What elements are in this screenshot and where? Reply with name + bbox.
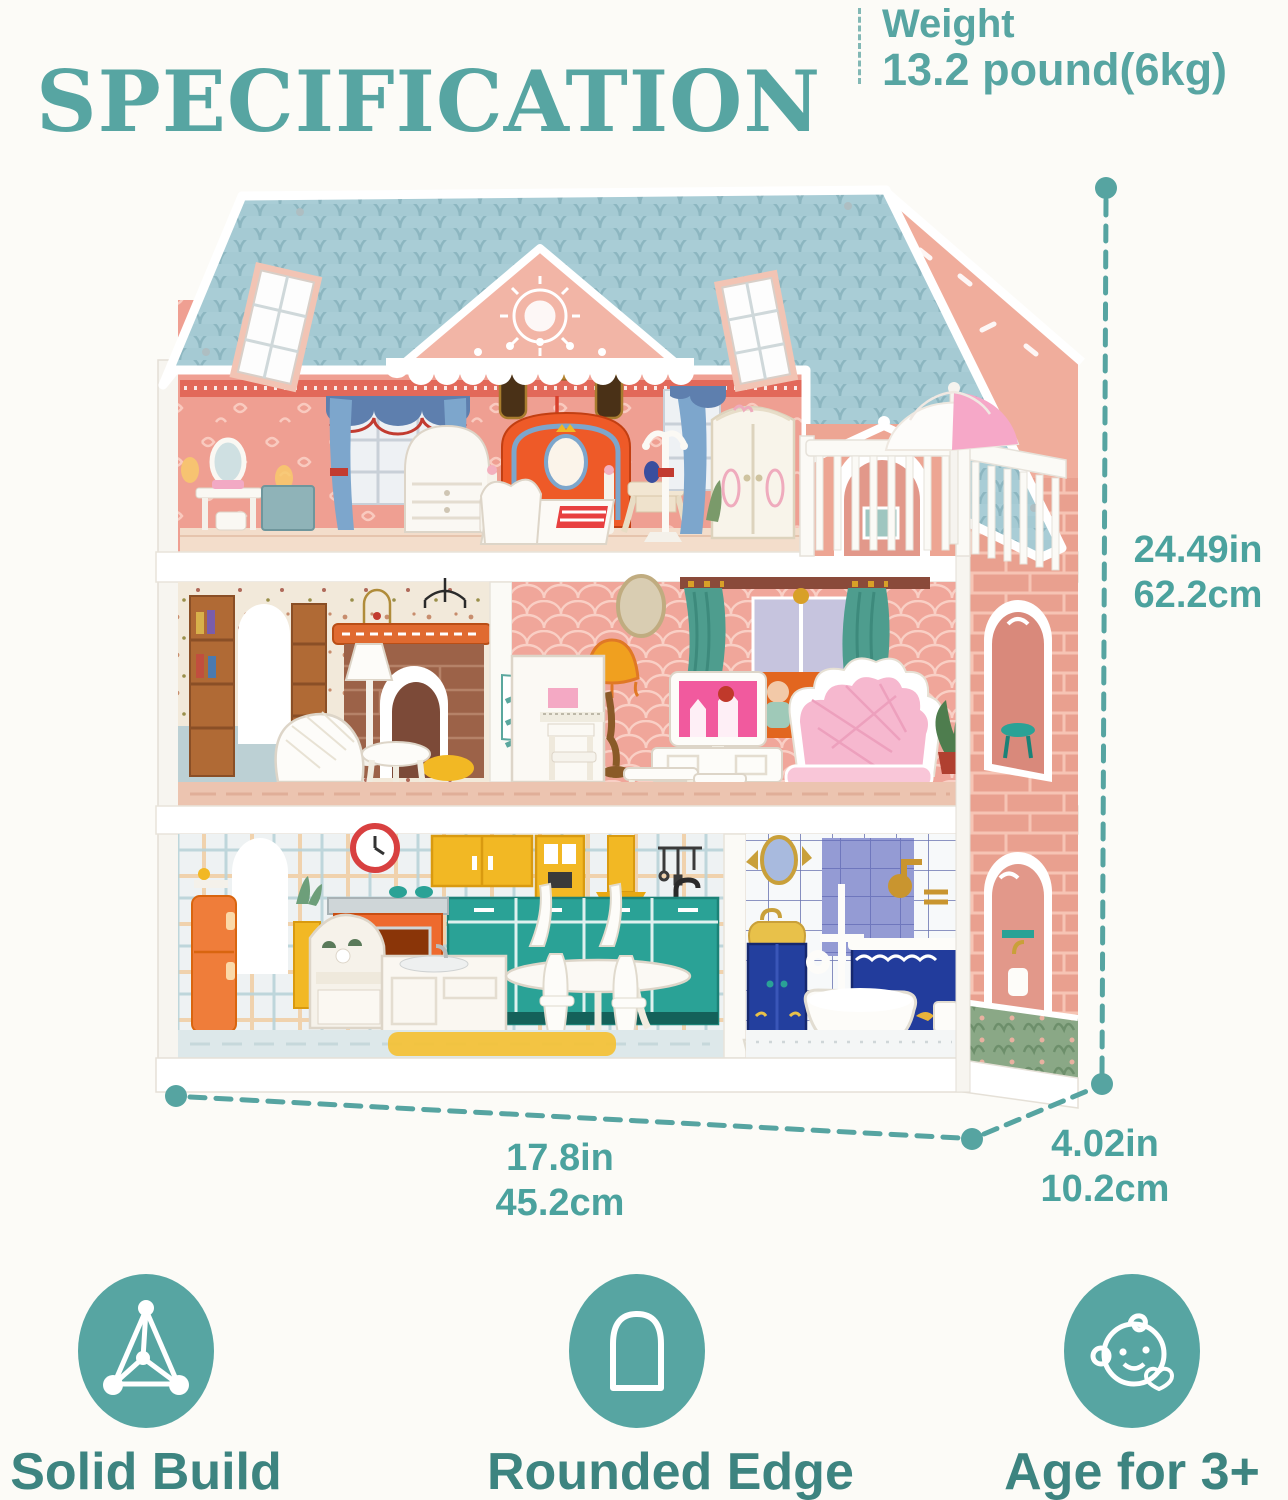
feature-age: Age for 3+ (982, 1272, 1282, 1500)
library-arch-opening (238, 604, 290, 744)
house-base (156, 1058, 968, 1092)
middle-floor (178, 576, 971, 806)
wall-clock (353, 826, 397, 870)
height-inches: 24.49in (1108, 528, 1288, 573)
height-dimension-line (1102, 200, 1106, 1076)
baby-face-icon (1062, 1272, 1202, 1430)
feature-label-rounded-edge: Rounded Edge (487, 1442, 787, 1500)
kitchen-hutch (310, 915, 388, 1028)
kitchen-rug (388, 1032, 616, 1056)
width-dimension-label: 17.8in 45.2cm (440, 1136, 680, 1226)
piano (512, 656, 604, 782)
feature-solid-build: Solid Build (0, 1272, 296, 1500)
floor-slab-lower (156, 806, 1078, 834)
arch-icon (567, 1272, 707, 1430)
feature-label-age: Age for 3+ (982, 1442, 1282, 1500)
bathroom-vanity (748, 910, 806, 1032)
attic-dresser (405, 426, 489, 532)
depth-inches: 4.02in (1000, 1122, 1210, 1167)
height-metric: 62.2cm (1108, 573, 1288, 618)
spec-sheet: SPECIFICATION Weight 13.2 pound(6kg) (0, 0, 1288, 1500)
depth-metric: 10.2cm (1000, 1167, 1210, 1212)
depth-dimension-label: 4.02in 10.2cm (1000, 1122, 1210, 1212)
wardrobe (712, 406, 794, 538)
feature-rounded-edge: Rounded Edge (487, 1272, 787, 1500)
width-dimension-line (190, 1097, 960, 1138)
side-window-upper (984, 600, 1052, 782)
tetrahedron-icon (76, 1272, 216, 1430)
oval-mirror (618, 576, 664, 636)
bathroom-mirror (762, 837, 796, 883)
height-dimension-label: 24.49in 62.2cm (1108, 528, 1288, 618)
house-left-wall (158, 360, 180, 1090)
floor-slab-upper (156, 552, 1078, 582)
width-inches: 17.8in (440, 1136, 680, 1181)
kitchen-arch-opening (232, 838, 288, 974)
range-hood (608, 836, 634, 892)
feature-label-solid-build: Solid Build (0, 1442, 296, 1500)
sink-cabinet (382, 946, 506, 1032)
bottom-floor (178, 826, 966, 1064)
width-metric: 45.2cm (440, 1181, 680, 1226)
